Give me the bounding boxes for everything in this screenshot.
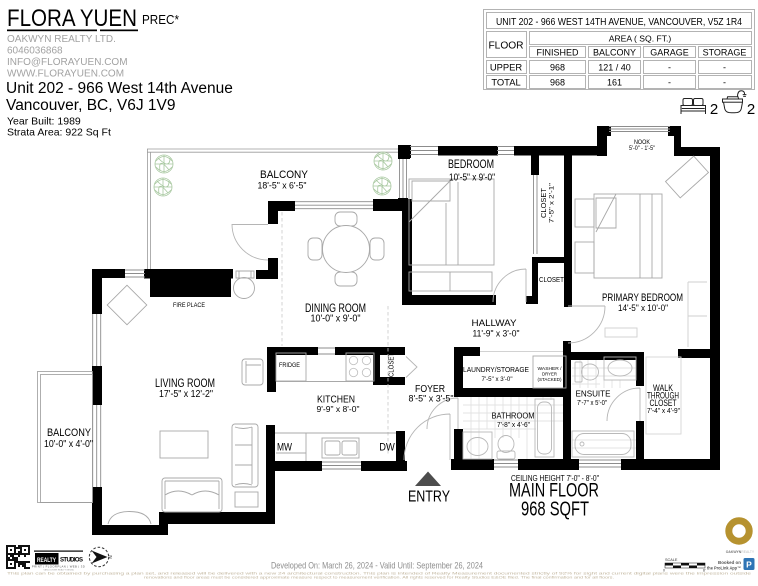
svg-text:N: N	[108, 555, 113, 558]
svg-text:PRINT | FLOORPLAN | WEB | 3D: PRINT | FLOORPLAN | WEB | 3D	[32, 565, 85, 569]
svg-text:Booked on: Booked on	[718, 560, 741, 565]
svg-text:Developed On: March 26, 2024 -: Developed On: March 26, 2024 - Valid Unt…	[271, 561, 483, 572]
svg-text:0: 0	[663, 569, 665, 573]
svg-text:the ProLink App™: the ProLink App™	[707, 566, 741, 571]
svg-text:P: P	[746, 560, 752, 570]
svg-text:8': 8'	[703, 569, 706, 573]
svg-text:OAKWYNREALTY: OAKWYNREALTY	[726, 550, 755, 554]
svg-text:STUDIOS: STUDIOS	[60, 558, 83, 564]
svg-text:renovations and floor areas mu: renovations and floor areas must be cons…	[144, 576, 614, 580]
svg-text:REALTY: REALTY	[37, 557, 57, 564]
svg-text:SCALE: SCALE	[665, 558, 678, 562]
